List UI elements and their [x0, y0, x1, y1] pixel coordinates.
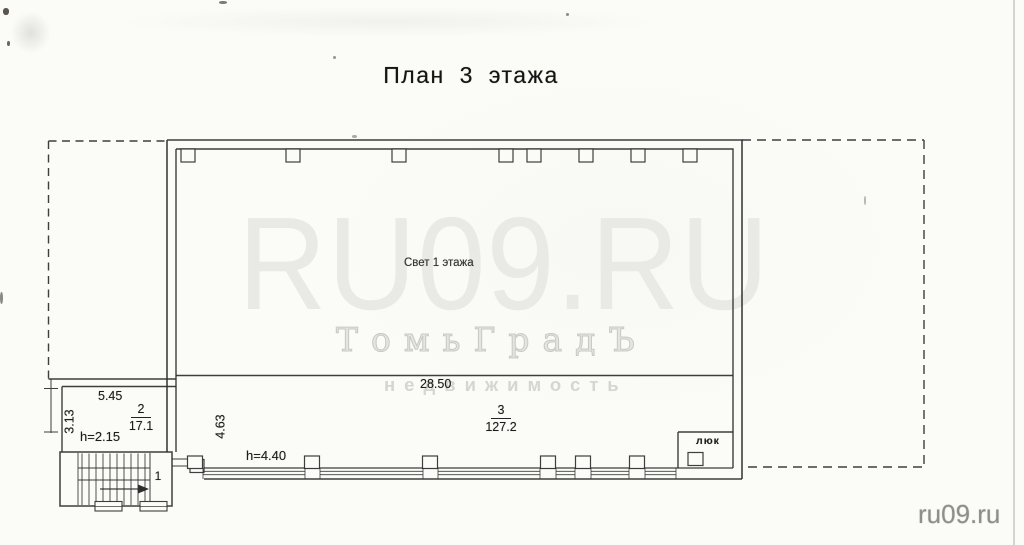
bottom-wall-window-jambs	[203, 468, 676, 479]
dim-room2-depth: 3.13	[63, 400, 76, 444]
main-outer-wall	[167, 140, 742, 479]
room2-number: 2	[131, 402, 152, 418]
light-well-label: Свет 1 этажа	[404, 257, 474, 269]
dimension-line-room2-depth	[44, 379, 58, 433]
dim-room2-width: 5.45	[98, 390, 122, 403]
room2-area: 17.1	[126, 419, 156, 433]
dim-corridor-ceiling: h=4.40	[246, 449, 286, 463]
room2-number-area: 2 17.1	[126, 402, 156, 433]
dim-corridor-depth: 4.63	[214, 405, 227, 449]
scanned-floorplan-page: RU09.RU ТомьГрадЪ недвижимость	[0, 0, 1024, 545]
room3-number-area: 3 127.2	[480, 403, 522, 434]
main-inner-wall	[176, 149, 733, 468]
stair-direction-arrow-head	[138, 485, 149, 494]
page-title: План 3 этажа	[374, 62, 568, 89]
dim-room2-ceiling: h=2.15	[80, 430, 120, 444]
bottom-wall-window-glazing	[203, 471, 676, 474]
hatch-label: люк	[690, 436, 726, 447]
stair-treads	[82, 454, 145, 506]
scan-artifact	[3, 8, 9, 15]
scan-artifact	[333, 56, 336, 59]
room3-number: 3	[491, 403, 512, 419]
scan-artifact	[352, 135, 357, 138]
hatch-column	[688, 453, 703, 466]
annex-left-dashed-outline	[49, 141, 168, 381]
scan-artifact	[219, 1, 227, 4]
watermark-ru09-corner: ru09.ru	[918, 499, 1000, 530]
scan-artifact	[864, 196, 866, 205]
scan-artifact	[0, 292, 3, 304]
room3-area: 127.2	[480, 420, 522, 434]
scan-artifact	[566, 13, 569, 16]
dim-corridor-width: 28.50	[420, 378, 451, 391]
annex-right-dashed-outline	[742, 140, 924, 467]
top-wall-columns	[181, 149, 697, 162]
stair-exit-door-lines	[172, 459, 189, 466]
scan-artifact	[7, 41, 10, 46]
stairwell-number-label: 1	[151, 470, 165, 483]
